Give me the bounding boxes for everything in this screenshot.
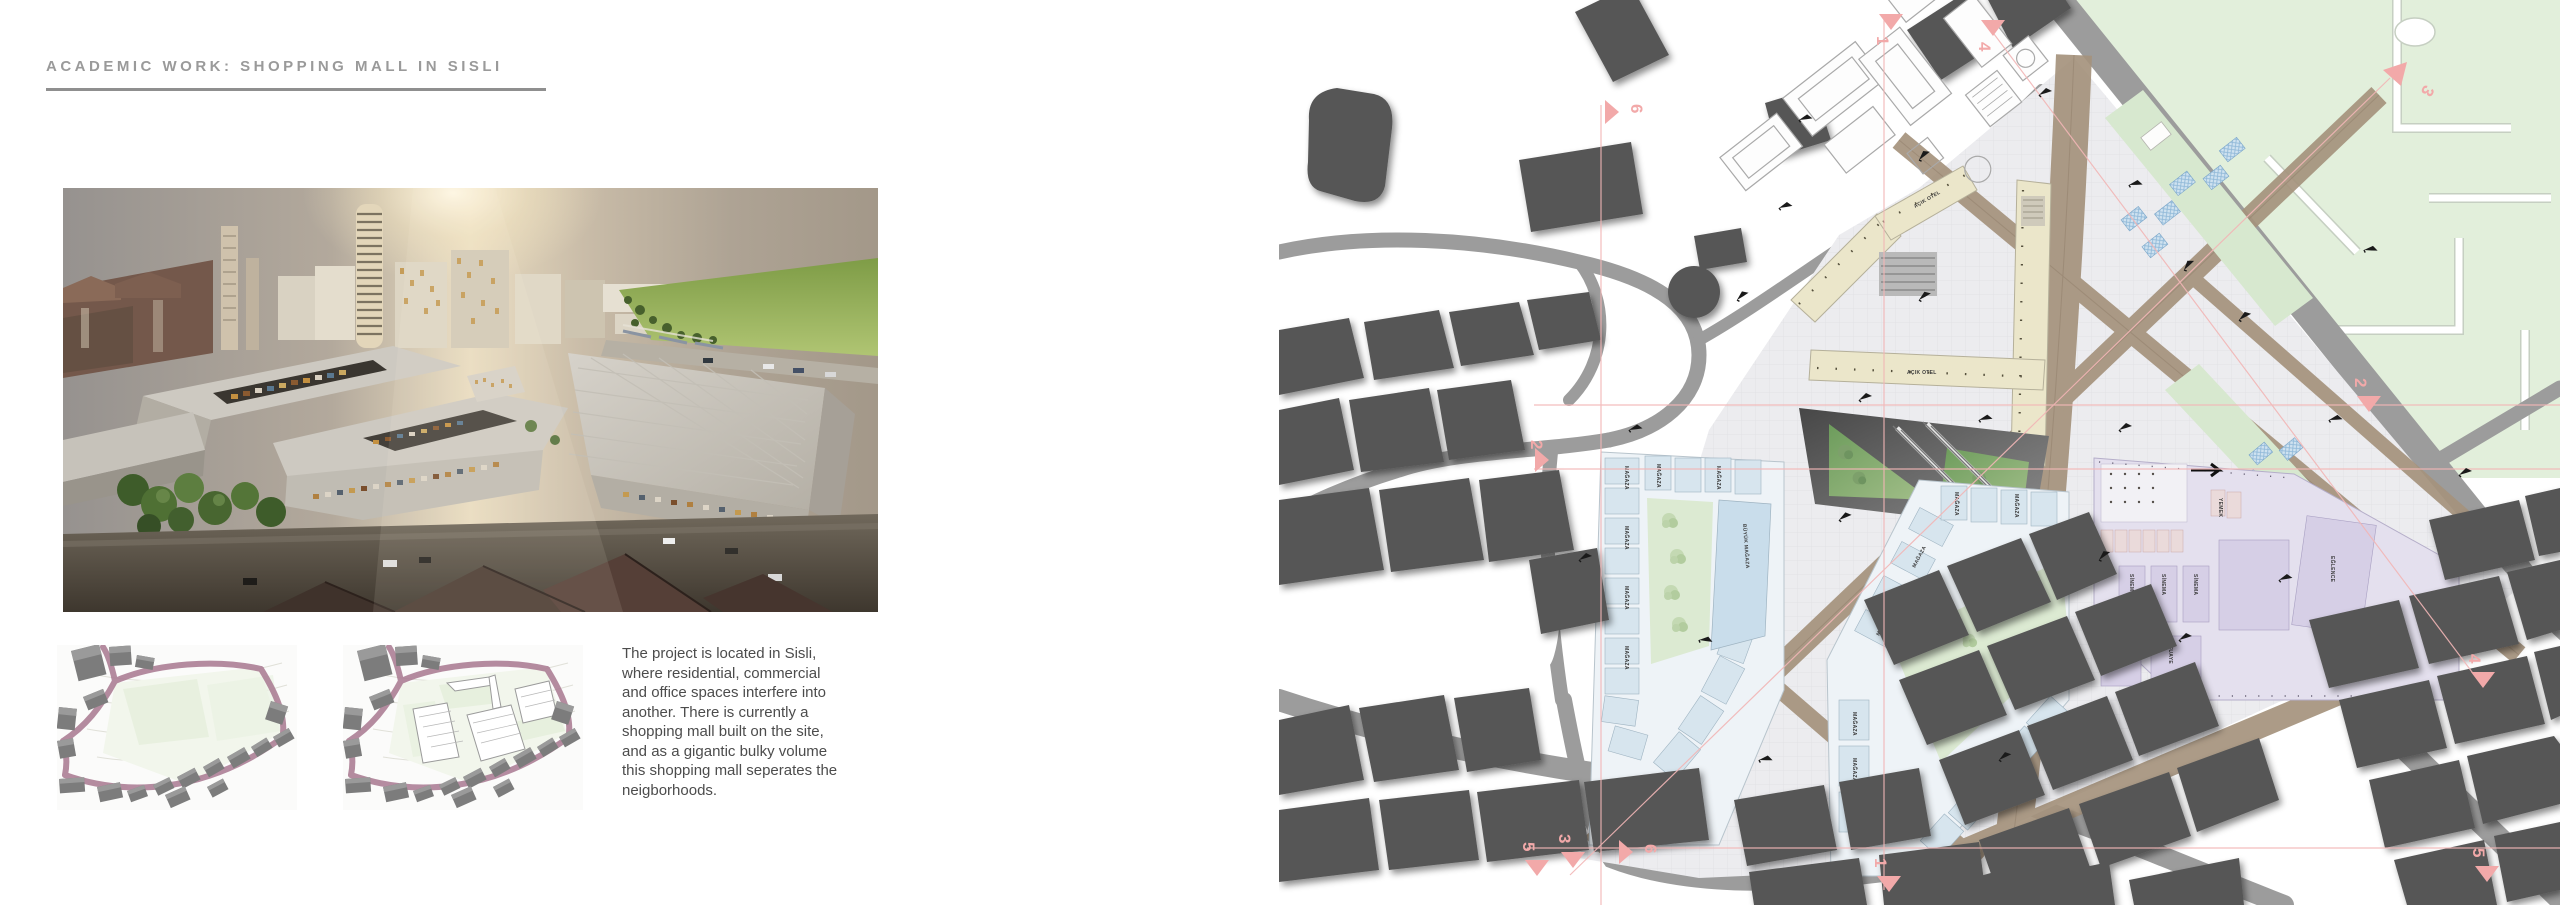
plan-label-shop: MAĞAZA — [2013, 494, 2021, 518]
plan-label-shop: MAĞAZA — [1655, 464, 1663, 488]
svg-text:5: 5 — [2469, 848, 2488, 857]
page-title: ACADEMIC WORK: SHOPPING MALL IN SISLI — [46, 58, 503, 75]
plan-label-shop: MAĞAZA — [1623, 526, 1631, 550]
plan-label-shop: MAĞAZA — [1623, 586, 1631, 610]
svg-text:2: 2 — [1527, 440, 1546, 449]
site-plan-drawing: AÇIK OTEL AÇIK OTEL MAĞAZA MAĞAZA MAĞAZA… — [1279, 0, 2560, 905]
site-diagram-proposal — [343, 645, 583, 810]
site-diagram-existing — [57, 645, 297, 810]
plan-label-shop: MAĞAZA — [1623, 646, 1631, 670]
svg-text:3: 3 — [1555, 834, 1574, 843]
svg-text:1: 1 — [1871, 858, 1890, 867]
description-line: and office spaces interfere into — [622, 683, 932, 703]
plan-label-food: YEMEK — [2217, 498, 2223, 517]
description-line: another. There is currently a — [622, 703, 932, 723]
aerial-render-image — [63, 188, 878, 612]
svg-text:5: 5 — [1519, 842, 1538, 851]
project-description: The project is located in Sisli, where r… — [622, 644, 932, 800]
description-line: this shopping mall seperates the — [622, 761, 932, 781]
svg-text:4: 4 — [1975, 42, 1994, 52]
svg-text:1: 1 — [1873, 36, 1892, 45]
plan-label-entertainment: EĞLENCE — [2329, 556, 2337, 583]
title-underline — [46, 88, 546, 91]
description-line: and as a gigantic bulky volume — [622, 742, 932, 762]
description-line: shopping mall built on the site, — [622, 722, 932, 742]
svg-text:4: 4 — [2465, 654, 2484, 664]
svg-text:6: 6 — [1627, 104, 1646, 113]
plan-label-cinema: SİNEMA — [2160, 574, 2167, 595]
plan-label-hotel: AÇIK OTEL — [1907, 370, 1937, 376]
svg-text:6: 6 — [1641, 844, 1660, 853]
aerial-render-graphic — [63, 188, 878, 612]
description-line: where residential, commercial — [622, 664, 932, 684]
description-line: neigborhoods. — [622, 781, 932, 801]
svg-text:2: 2 — [2351, 378, 2370, 387]
plan-label-shop: MAĞAZA — [1851, 712, 1859, 736]
description-line: The project is located in Sisli, — [622, 644, 932, 664]
plan-label-cinema: SİNEMA — [2192, 574, 2199, 595]
plan-label-shop: MAĞAZA — [1851, 758, 1859, 782]
